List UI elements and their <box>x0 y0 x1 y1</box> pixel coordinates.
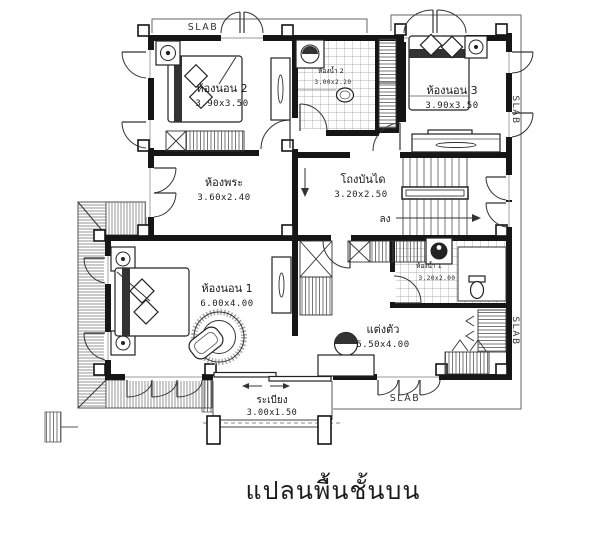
dresser-icon <box>412 134 500 152</box>
bedroom2-dims: 3.90x3.50 <box>195 99 248 109</box>
bedroom1-label: ห้องนอน 1 <box>201 282 252 295</box>
stairs-down-label: ลง <box>379 214 390 225</box>
cabinet-icon <box>271 58 290 120</box>
bedroom1-dims: 6.00x4.00 <box>200 299 253 309</box>
balcony-label: ระเบียง <box>256 394 287 406</box>
floor-plan: SLAB SLAB SLAB SLAB ห้องนอน 2 3.90x3.50 … <box>0 0 600 550</box>
prayer-room-label: ห้องพระ <box>205 176 243 189</box>
footing-detail <box>45 412 61 442</box>
bedroom2-label: ห้องนอน 2 <box>196 82 247 95</box>
stair-handrail <box>402 187 468 199</box>
bedroom3-dims: 3.90x3.50 <box>425 101 478 111</box>
slab-label-right-lower: SLAB <box>510 316 520 345</box>
stair-hall-label: โถงบันได <box>340 172 385 186</box>
bath1-label: ห้องน้ำ 1 <box>416 261 442 270</box>
dressing-dims: 5.50x4.00 <box>356 340 409 350</box>
stair-hall-dims: 3.20x2.50 <box>334 190 387 200</box>
bedroom2-lamp <box>156 41 180 65</box>
bedroom3-bed <box>409 34 469 110</box>
slab-label-bottom: SLAB <box>390 393 421 404</box>
dressing-label: แต่งตัว <box>367 323 400 336</box>
balcony-dims: 3.00x1.50 <box>247 408 298 418</box>
bedroom3-label: ห้องนอน 3 <box>426 84 477 97</box>
toilet-icon <box>471 282 484 299</box>
plan-caption: แปลนพื้นชั้นบน <box>246 472 421 505</box>
bath1-dims: 3.20x2.00 <box>418 275 455 282</box>
bath2-dims: 3.00x2.20 <box>314 79 351 86</box>
balcony-post <box>318 416 331 444</box>
balcony-post <box>207 416 220 444</box>
cabinet-icon <box>272 257 291 313</box>
prayer-room-dims: 3.60x2.40 <box>197 193 250 203</box>
bedroom3-lamp <box>465 36 487 58</box>
bath2-label: ห้องน้ำ 2 <box>318 66 344 75</box>
slab-label-right-upper: SLAB <box>510 95 520 124</box>
slab-label-top: SLAB <box>188 22 219 33</box>
dressing-table-icon <box>318 355 374 376</box>
toilet-icon <box>337 88 354 102</box>
